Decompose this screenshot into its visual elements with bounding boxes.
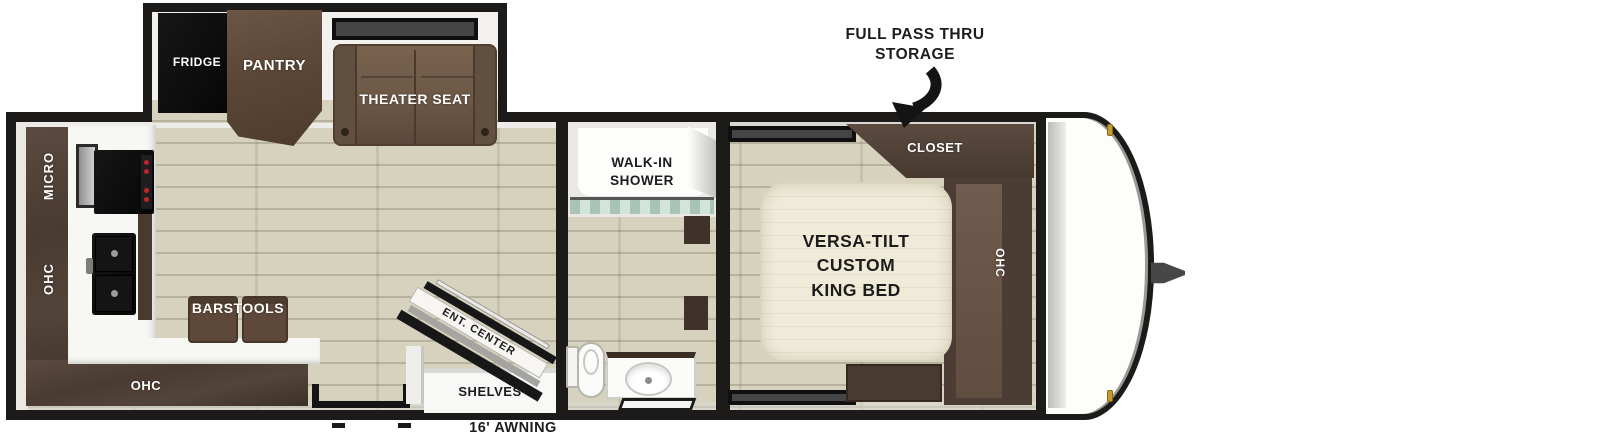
- bed-label-line2: CUSTOM: [760, 256, 952, 275]
- bedroom-ohc-label: OHC: [992, 248, 1005, 278]
- awning-tick-2: [398, 423, 411, 428]
- bathroom-cabinet-lower: [684, 296, 708, 330]
- bathroom-wall-right: [716, 122, 730, 410]
- toilet-seat-ring: [583, 349, 599, 375]
- fridge-label: FRIDGE: [173, 56, 221, 69]
- shower-glass-door: [570, 197, 714, 214]
- theater-seat-label: THEATER SEAT: [333, 92, 497, 107]
- micro-label-wrap: MICRO: [38, 146, 60, 206]
- marker-light-top: [1107, 124, 1113, 136]
- entry-step: [312, 384, 410, 408]
- awning-tick-1: [332, 423, 345, 428]
- ohc-bottom-label: OHC: [96, 379, 196, 393]
- bedroom-dresser: [846, 364, 942, 402]
- micro-label: MICRO: [42, 152, 56, 200]
- cooktop-knob-2: [144, 169, 149, 174]
- closet-label: CLOSET: [890, 141, 980, 155]
- awning-label: 16' AWNING: [433, 421, 593, 437]
- rv-floorplan: FRIDGE PANTRY THEATER SEAT MICRO: [0, 0, 1600, 439]
- bathroom-cabinet-upper: [684, 216, 710, 244]
- sink-drain-1: [111, 250, 118, 257]
- bedroom-window-bottom: [728, 390, 856, 405]
- bedroom-ohc-inner-panel: [956, 184, 1002, 398]
- bath-mat: [618, 398, 697, 411]
- theater-seat-cupholder-left: [341, 128, 349, 136]
- bed-label-block: VERSA-TILT CUSTOM KING BED: [760, 232, 952, 300]
- cooktop: [94, 150, 154, 214]
- theater-seat-cupholder-right: [481, 128, 489, 136]
- callout-line1: FULL PASS THRU: [790, 26, 1040, 43]
- toilet-bowl: [577, 342, 605, 398]
- theater-seat-cushion-line2: [421, 76, 473, 78]
- pantry-label: PANTRY: [227, 58, 322, 75]
- bed-label-line1: VERSA-TILT: [760, 232, 952, 251]
- cooktop-knob-4: [144, 197, 149, 202]
- marker-light-bottom: [1107, 390, 1113, 402]
- vanity: [606, 352, 696, 399]
- ohc-left-label: OHC: [42, 263, 56, 295]
- sink-faucet: [86, 258, 93, 274]
- shelves-partition-wall: [406, 346, 424, 404]
- shower-label-line2: SHOWER: [568, 174, 716, 189]
- cooktop-knob-1: [144, 160, 149, 165]
- barstools-label: BARSTOOLS: [178, 301, 298, 316]
- kitchen-sink: [92, 233, 136, 315]
- sink-drain-2: [111, 290, 118, 297]
- shower-label-block: WALK-IN SHOWER: [568, 156, 716, 189]
- shower-label-line1: WALK-IN: [568, 156, 716, 171]
- counter-side-panel: [138, 214, 152, 320]
- callout-arrow-icon: [876, 64, 946, 130]
- slideout-window: [332, 18, 478, 40]
- hitch-coupler: [1151, 256, 1185, 290]
- fridge: FRIDGE: [158, 13, 236, 113]
- bedroom-ohc-cabinet: [944, 178, 1032, 405]
- pass-thru-storage-area: [1048, 122, 1066, 408]
- vanity-drain: [645, 377, 652, 384]
- bedroom-ohc-label-wrap: OHC: [984, 240, 1014, 286]
- callout-line2: STORAGE: [790, 46, 1040, 63]
- pantry: [227, 10, 322, 146]
- cooktop-knob-3: [144, 188, 149, 193]
- ohc-left-label-wrap: OHC: [38, 249, 60, 309]
- bed-label-line3: KING BED: [760, 281, 952, 300]
- theater-seat-cushion-line: [361, 76, 413, 78]
- bedroom-window-top: [728, 126, 856, 142]
